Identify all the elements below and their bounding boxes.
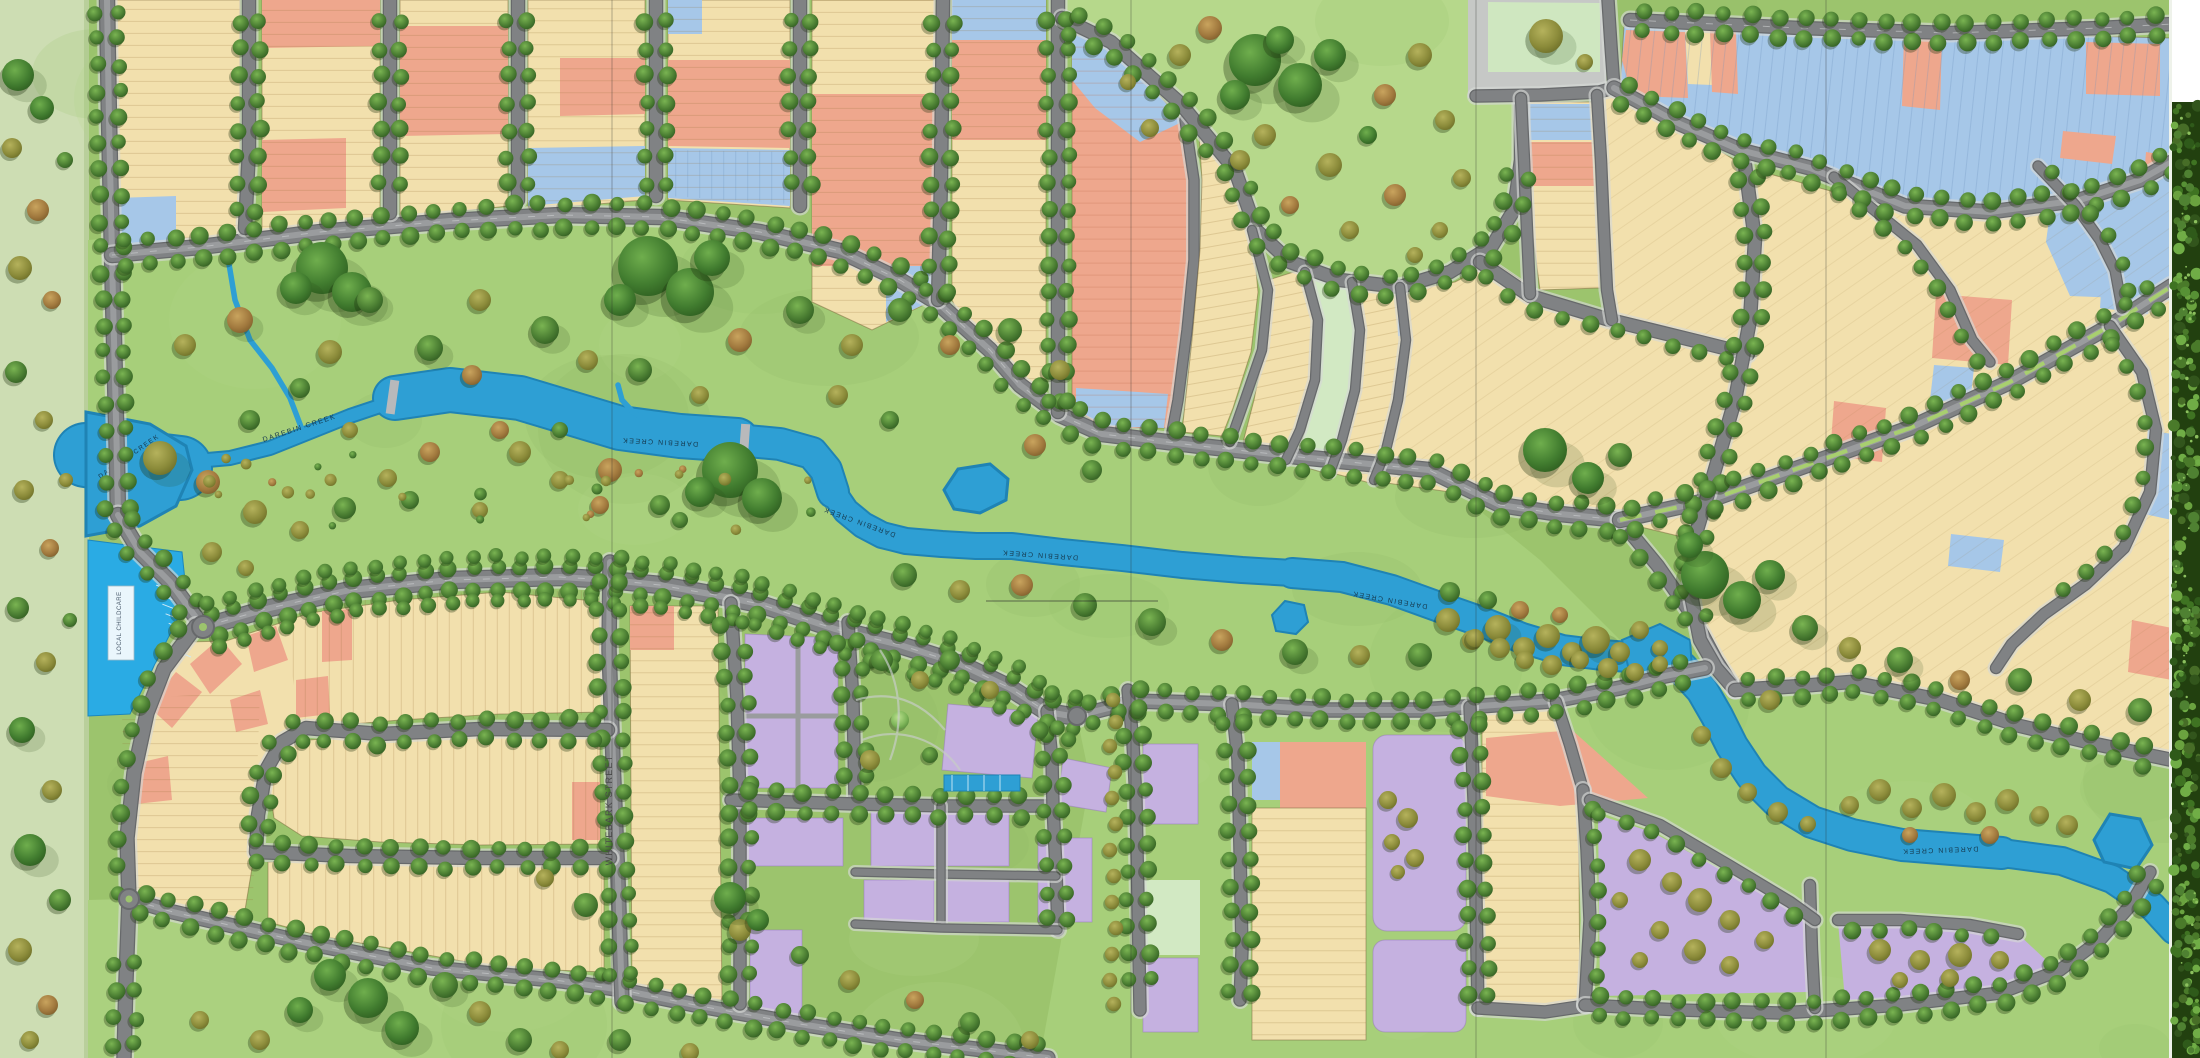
svg-text:LOCAL CHILDCARE: LOCAL CHILDCARE [117,591,123,654]
